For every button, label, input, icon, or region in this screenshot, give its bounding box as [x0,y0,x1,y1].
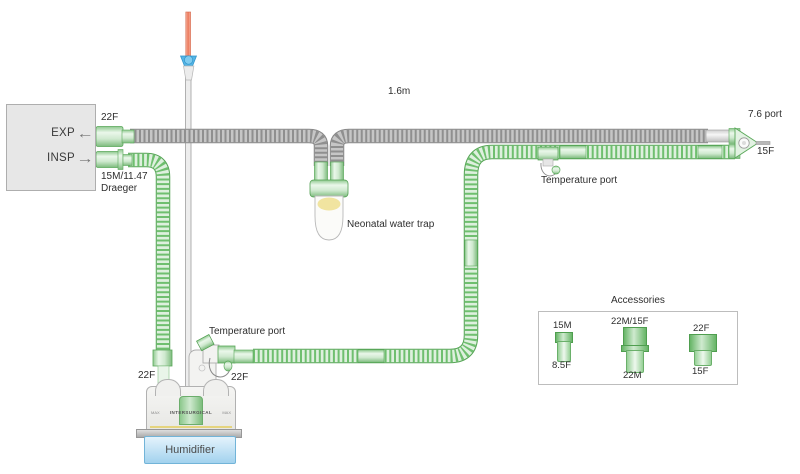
spike-orange-cap [186,12,191,58]
ventilator-box: EXP ← INSP → [6,104,96,191]
tubing-layer [0,0,800,474]
exp-label: EXP [51,127,75,139]
humidifier-label: Humidifier [165,444,215,456]
chamber-water-level [150,426,232,428]
insp-port-connector-15M [96,150,132,170]
accessory-2-connector [623,327,647,347]
exp-port-connector-22F [96,127,134,147]
tube-length-label: 1.6m [388,86,410,98]
accessories-box: 15M 8.5F 22M/15F 22M 22F 15F [538,311,738,385]
insp-arrow-right-icon: → [76,153,94,163]
water-trap-fluid [318,198,341,211]
breathing-circuit-diagram: EXP ← INSP → INTERSURGICAL MAX MAX Humid… [0,0,800,474]
exp-arrow-left-icon: ← [76,128,94,138]
exp-port-size-label: 22F [101,112,118,124]
insp-port-size-line1: 15M/11.47 [101,171,148,183]
patient-port-stub [756,142,770,145]
accessory-3-bottom-label: 15F [692,366,708,377]
chamber-max-left: MAX [151,410,160,415]
neonatal-water-trap [310,162,348,240]
temperature-port-limb-label: Temperature port [541,175,617,187]
insp-port-size-line2: Draeger [101,183,148,195]
insp-port-size-label: 15M/11.47 Draeger [101,171,148,195]
humidifier-inlet-size-label: 22F [138,370,155,382]
insp-label: INSP [47,152,75,164]
patient-connector-label: 15F [757,146,774,158]
accessory-1-top-label: 15M [553,320,571,331]
accessory-1-connector-tip [557,341,571,362]
elbow-port-cap [224,361,232,371]
temperature-port-limb [538,147,560,176]
water-trap-label: Neonatal water trap [347,219,434,231]
accessory-2-bottom-label: 22M [623,370,641,381]
exp-row: EXP ← [51,127,92,139]
accessory-1-bottom-label: 8.5F [552,360,571,371]
accessory-3-connector-tip [694,350,712,366]
insp-row: INSP → [47,152,92,164]
water-trap-cap [310,180,348,197]
temperature-port-cap [552,166,560,174]
patient-port-label: 7.6 port [748,109,782,121]
accessory-2-top-label: 22M/15F [611,316,649,327]
humidifier-base: Humidifier [144,436,236,464]
temperature-port-humidifier-label: Temperature port [209,326,285,338]
water-feed-spike [181,12,197,80]
chamber-left-dome [155,379,181,396]
accessories-title: Accessories [611,295,665,307]
chamber-right-dome [203,379,229,396]
humidifier-chamber: INTERSURGICAL MAX MAX [146,386,236,432]
chamber-max-right: MAX [222,410,231,415]
accessory-3-top-label: 22F [693,323,709,334]
water-feed-line [186,74,192,400]
expiratory-smooth-connector [706,130,730,142]
humidifier-outlet-size-label: 22F [231,372,248,384]
